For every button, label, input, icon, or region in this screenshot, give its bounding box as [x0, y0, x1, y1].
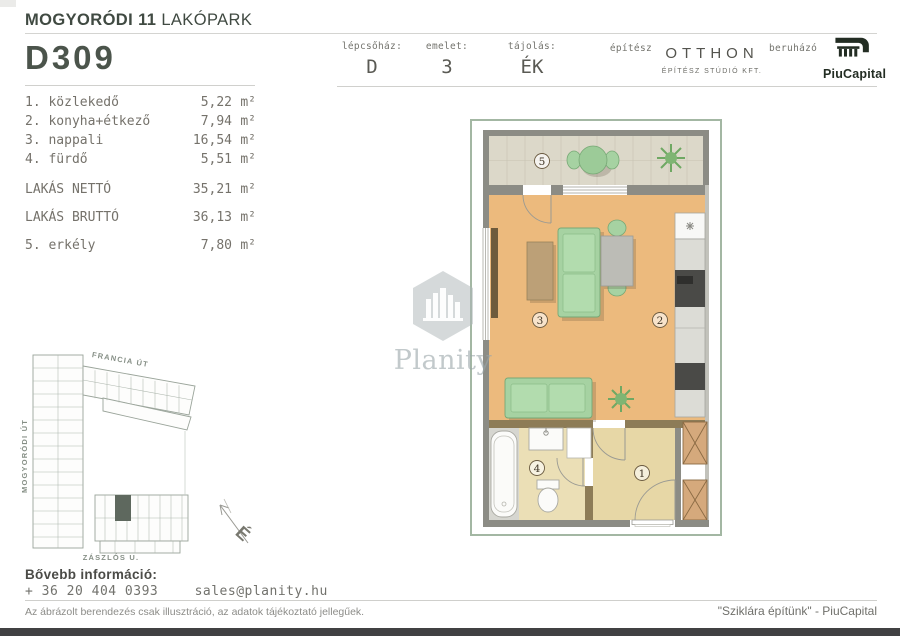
street-mogyorodi-ut: MOGYORÓDI ÚT	[20, 419, 29, 493]
room-row: 1. közlekedő 5,22 m²	[25, 95, 256, 114]
slogan-text: "Sziklára építünk" - PiuCapital	[718, 604, 877, 618]
floor-plan-drawing: 5	[479, 128, 713, 527]
svg-text:1: 1	[639, 468, 646, 480]
piucapital-icon	[829, 36, 871, 60]
net-area-row: LAKÁS NETTÓ 35,21 m²	[25, 182, 256, 201]
washing-machine	[567, 428, 591, 458]
street-francia-ut: FRANCIA ÚT	[91, 350, 149, 369]
toilet	[537, 480, 559, 512]
svg-text:5: 5	[539, 156, 546, 168]
room-row: 3. nappali 16,54 m²	[25, 133, 256, 152]
net-area: 35,21	[186, 182, 232, 197]
bathroom-sink	[529, 428, 563, 450]
room-area: 5,22	[186, 95, 232, 110]
balcony-number: 5	[535, 154, 550, 169]
street-zaszlos-u: ZÁSZLÓS U.	[83, 553, 140, 562]
living-number: 3	[533, 313, 548, 328]
project-title: MOGYORÓDI 11 LAKÓPARK	[25, 11, 252, 30]
room-name: 2. konyha+étkező	[25, 114, 186, 129]
room-unit: m²	[232, 95, 256, 110]
field-orientation-value: ÉK	[487, 56, 577, 78]
field-staircase: lépcsőház: D	[337, 41, 407, 78]
kitchen-number: 2	[653, 313, 668, 328]
balcony-plant	[657, 144, 685, 172]
coffee-table	[527, 242, 556, 303]
room-name: 1. közlekedő	[25, 95, 186, 110]
bathtub	[491, 431, 517, 517]
sofa-second	[505, 378, 596, 422]
field-floor-label: emelet:	[407, 41, 487, 52]
phone-number: + 36 20 404 0393	[25, 584, 158, 599]
room-row: 4. fürdő 5,51 m²	[25, 152, 256, 171]
disclaimer-text: Az ábrázolt berendezés csak illusztráció…	[25, 606, 364, 618]
field-orientation: tájolás: ÉK	[487, 41, 577, 78]
email-address: sales@planity.hu	[195, 584, 328, 599]
svg-text:3: 3	[537, 315, 544, 327]
field-floor-value: 3	[407, 56, 487, 78]
more-info-label: Bővebb információ:	[25, 567, 157, 582]
balcony-unit: m²	[232, 238, 256, 253]
room-row: 2. konyha+étkező 7,94 m²	[25, 114, 256, 133]
bathroom: 4	[489, 428, 591, 520]
site-map: FRANCIA ÚT MOGYORÓDI ÚT ZÁSZLÓS U. É	[15, 343, 265, 567]
field-orientation-label: tájolás:	[487, 41, 577, 52]
project-title-rest: LAKÓPARK	[156, 11, 252, 29]
developer-logo: PiuCapital	[823, 36, 877, 81]
svg-text:2: 2	[657, 315, 664, 327]
balcony-row: 5. erkély 7,80 m²	[25, 238, 256, 257]
facade-wall	[483, 185, 709, 195]
architect-subtitle: ÉPÍTÉSZ STÚDIÓ KFT.	[657, 68, 767, 75]
net-label: LAKÁS NETTÓ	[25, 182, 186, 197]
tv-panel	[491, 228, 498, 318]
gross-label: LAKÁS BRUTTÓ	[25, 210, 186, 225]
floor-plan: 5	[470, 119, 722, 536]
room-area: 7,94	[186, 114, 232, 129]
room-area: 16,54	[186, 133, 232, 148]
room-unit: m²	[232, 114, 256, 129]
balcony: 5	[483, 130, 709, 185]
balcony-label: 5. erkély	[25, 238, 186, 253]
room-name: 3. nappali	[25, 133, 186, 148]
architect-logo: OTTHON ÉPÍTÉSZ STÚDIÓ KFT.	[657, 45, 767, 75]
svg-text:4: 4	[534, 463, 541, 475]
room-area: 5,51	[186, 152, 232, 167]
oven	[675, 363, 705, 390]
unit-code: D309	[25, 39, 116, 77]
architect-name: OTTHON	[657, 45, 767, 62]
field-staircase-label: lépcsőház:	[337, 41, 407, 52]
highlighted-unit	[115, 495, 131, 521]
shafts	[683, 422, 707, 520]
contact-line: + 36 20 404 0393 sales@planity.hu	[25, 584, 328, 599]
north-arrow: É	[220, 499, 255, 545]
bottom-wing-lower	[100, 541, 180, 553]
field-floor: emelet: 3	[407, 41, 487, 78]
bottom-edge-bar	[0, 628, 900, 636]
entry-threshold	[632, 520, 673, 525]
architect-label: építész	[587, 43, 652, 54]
footer-rule	[25, 600, 877, 601]
room-area-list: 1. közlekedő 5,22 m² 2. konyha+étkező 7,…	[25, 95, 256, 257]
hallway-number: 1	[635, 466, 650, 481]
stove	[675, 270, 705, 307]
balcony-area: 7,80	[186, 238, 232, 253]
site-plan-drawing: FRANCIA ÚT MOGYORÓDI ÚT ZÁSZLÓS U. É	[15, 343, 265, 567]
room-name: 4. fürdő	[25, 152, 186, 167]
developer-label: beruházó	[769, 43, 821, 54]
unit-code-underline	[25, 85, 255, 86]
floorplan-datasheet: MOGYORÓDI 11 LAKÓPARK D309 lépcsőház: D …	[0, 0, 900, 636]
gross-area-row: LAKÁS BRUTTÓ 36,13 m²	[25, 210, 256, 229]
room-unit: m²	[232, 152, 256, 167]
net-unit: m²	[232, 182, 256, 197]
room-unit: m²	[232, 133, 256, 148]
sofa-main	[558, 228, 604, 321]
gross-unit: m²	[232, 210, 256, 225]
hallway: 1	[593, 428, 675, 520]
field-staircase-value: D	[337, 56, 407, 78]
header-info-table: lépcsőház: D emelet: 3 tájolás: ÉK építé…	[337, 33, 877, 87]
bottom-wall	[483, 520, 709, 527]
gross-area: 36,13	[186, 210, 232, 225]
project-title-bold: MOGYORÓDI 11	[25, 11, 156, 29]
bathroom-number: 4	[530, 461, 545, 476]
developer-name: PiuCapital	[823, 67, 877, 81]
scan-artifact	[0, 0, 16, 7]
